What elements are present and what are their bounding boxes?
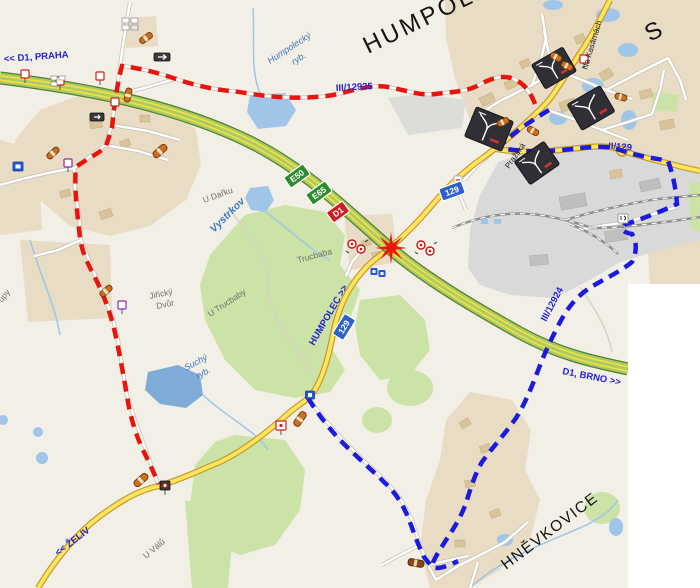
- label-ii129: II/129: [608, 141, 632, 154]
- map-canvas[interactable]: E50 E65 D1 129 129 << D1, PRAHA III/1293…: [0, 0, 700, 588]
- closure-star-icon: [375, 232, 407, 264]
- blue-sign-icon: [371, 268, 378, 275]
- arrow-sign-icon: [90, 113, 104, 121]
- blue-sign-icon: [13, 162, 23, 171]
- label-iii12935: III/12935: [336, 81, 374, 94]
- blue-sign-icon: [379, 270, 386, 277]
- arrow-sign-icon: [154, 53, 170, 61]
- blue-sign-icon: [306, 391, 315, 399]
- map-cutout: [628, 284, 700, 588]
